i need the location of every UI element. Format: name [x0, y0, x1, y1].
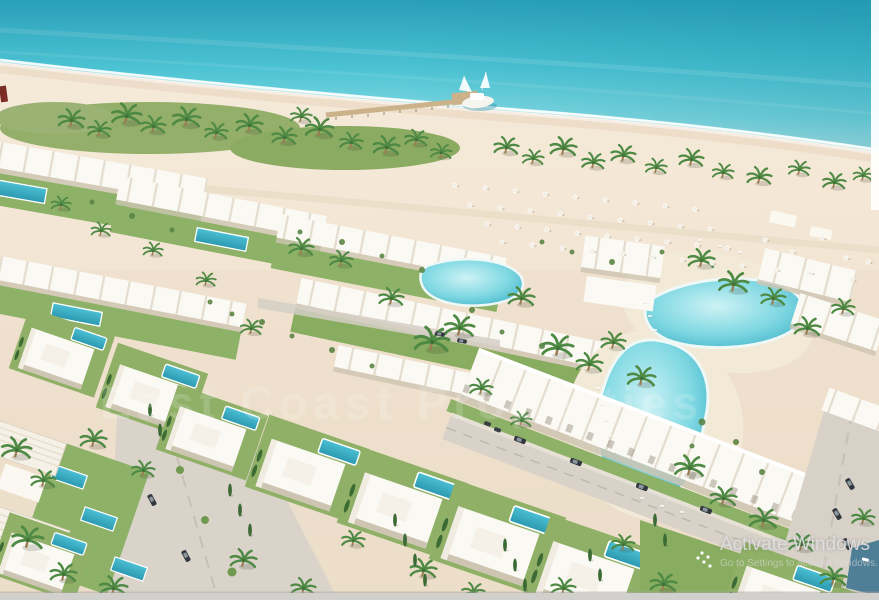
resort-aerial-render: East Coast Properties Activate Windows G…	[0, 0, 879, 600]
bottom-edge-line	[0, 592, 879, 594]
bottom-edge-strip	[0, 593, 879, 600]
central-pool	[420, 259, 523, 305]
scene-canvas	[0, 0, 879, 600]
right-edge-strip	[871, 0, 879, 210]
